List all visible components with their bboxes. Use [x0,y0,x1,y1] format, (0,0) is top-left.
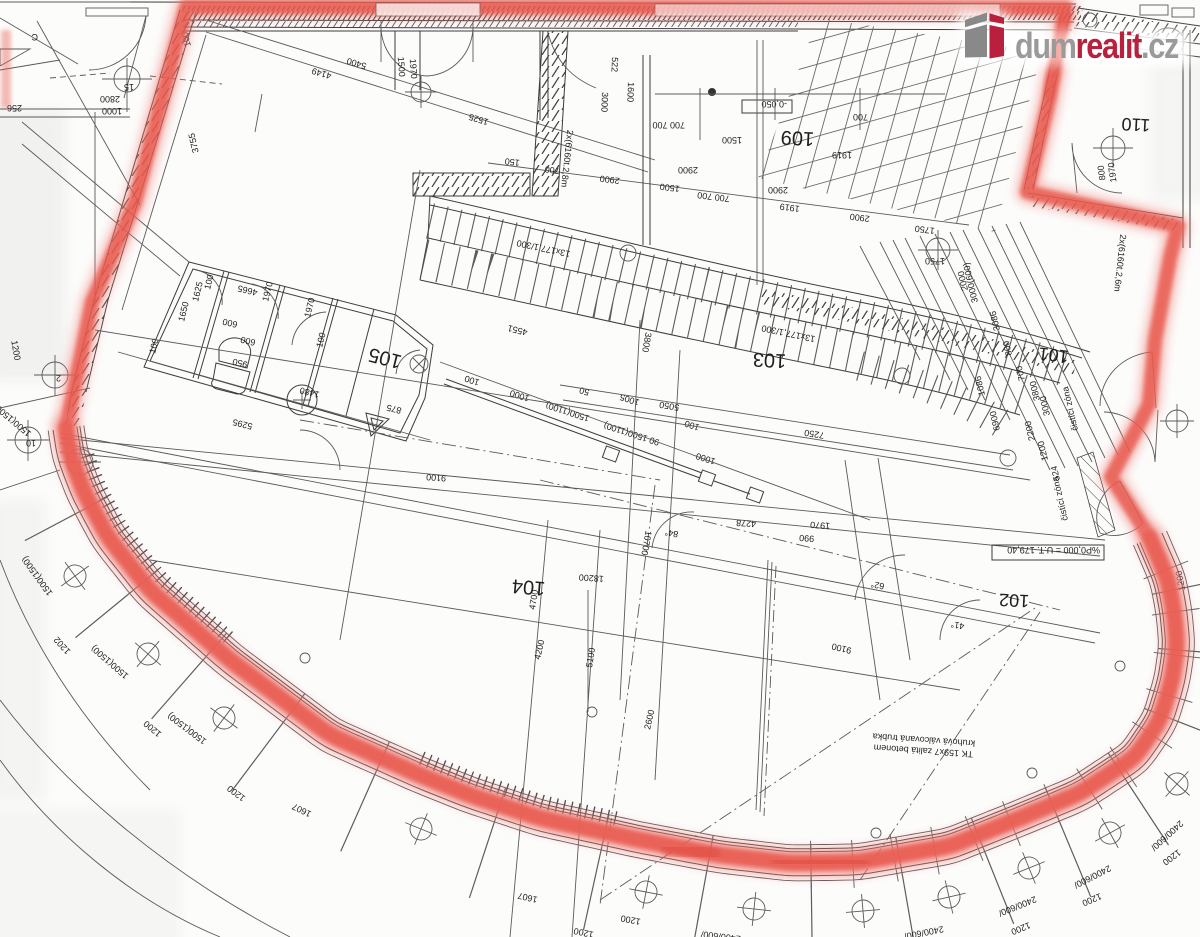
svg-text:9100: 9100 [426,472,447,483]
svg-text:18200: 18200 [578,572,604,584]
svg-text:103: 103 [752,348,786,372]
svg-text:1500: 1500 [396,56,407,77]
svg-text:%P0,000 = U.T. 179,40: %P0,000 = U.T. 179,40 [1007,545,1100,555]
svg-text:1000: 1000 [102,106,122,116]
svg-text:1500: 1500 [722,135,742,145]
svg-text:1970: 1970 [810,520,831,531]
svg-text:15: 15 [124,82,134,92]
svg-text:700 700: 700 700 [652,120,685,130]
svg-text:109: 109 [780,126,814,150]
svg-text:dumrealit.cz: dumrealit.cz [1015,25,1178,66]
svg-text:2: 2 [56,373,61,383]
svg-text:2900: 2900 [678,165,698,175]
svg-text:102: 102 [999,590,1030,612]
svg-text:101: 101 [1038,343,1070,367]
svg-text:2900: 2900 [768,185,788,195]
svg-text:1600: 1600 [625,82,636,102]
svg-text:1919: 1919 [832,150,852,160]
svg-text:522: 522 [609,57,620,72]
svg-text:C: C [31,32,38,42]
svg-text:990: 990 [799,533,815,544]
svg-text:3000: 3000 [599,92,610,112]
svg-text:4278: 4278 [736,518,757,529]
svg-text:10: 10 [26,438,36,448]
svg-text:700: 700 [853,112,868,122]
svg-text:-0,050: -0,050 [761,99,787,109]
svg-text:2800: 2800 [100,94,120,104]
svg-text:150: 150 [504,156,520,168]
svg-text:110: 110 [1121,114,1151,135]
svg-text:1970: 1970 [408,58,419,79]
